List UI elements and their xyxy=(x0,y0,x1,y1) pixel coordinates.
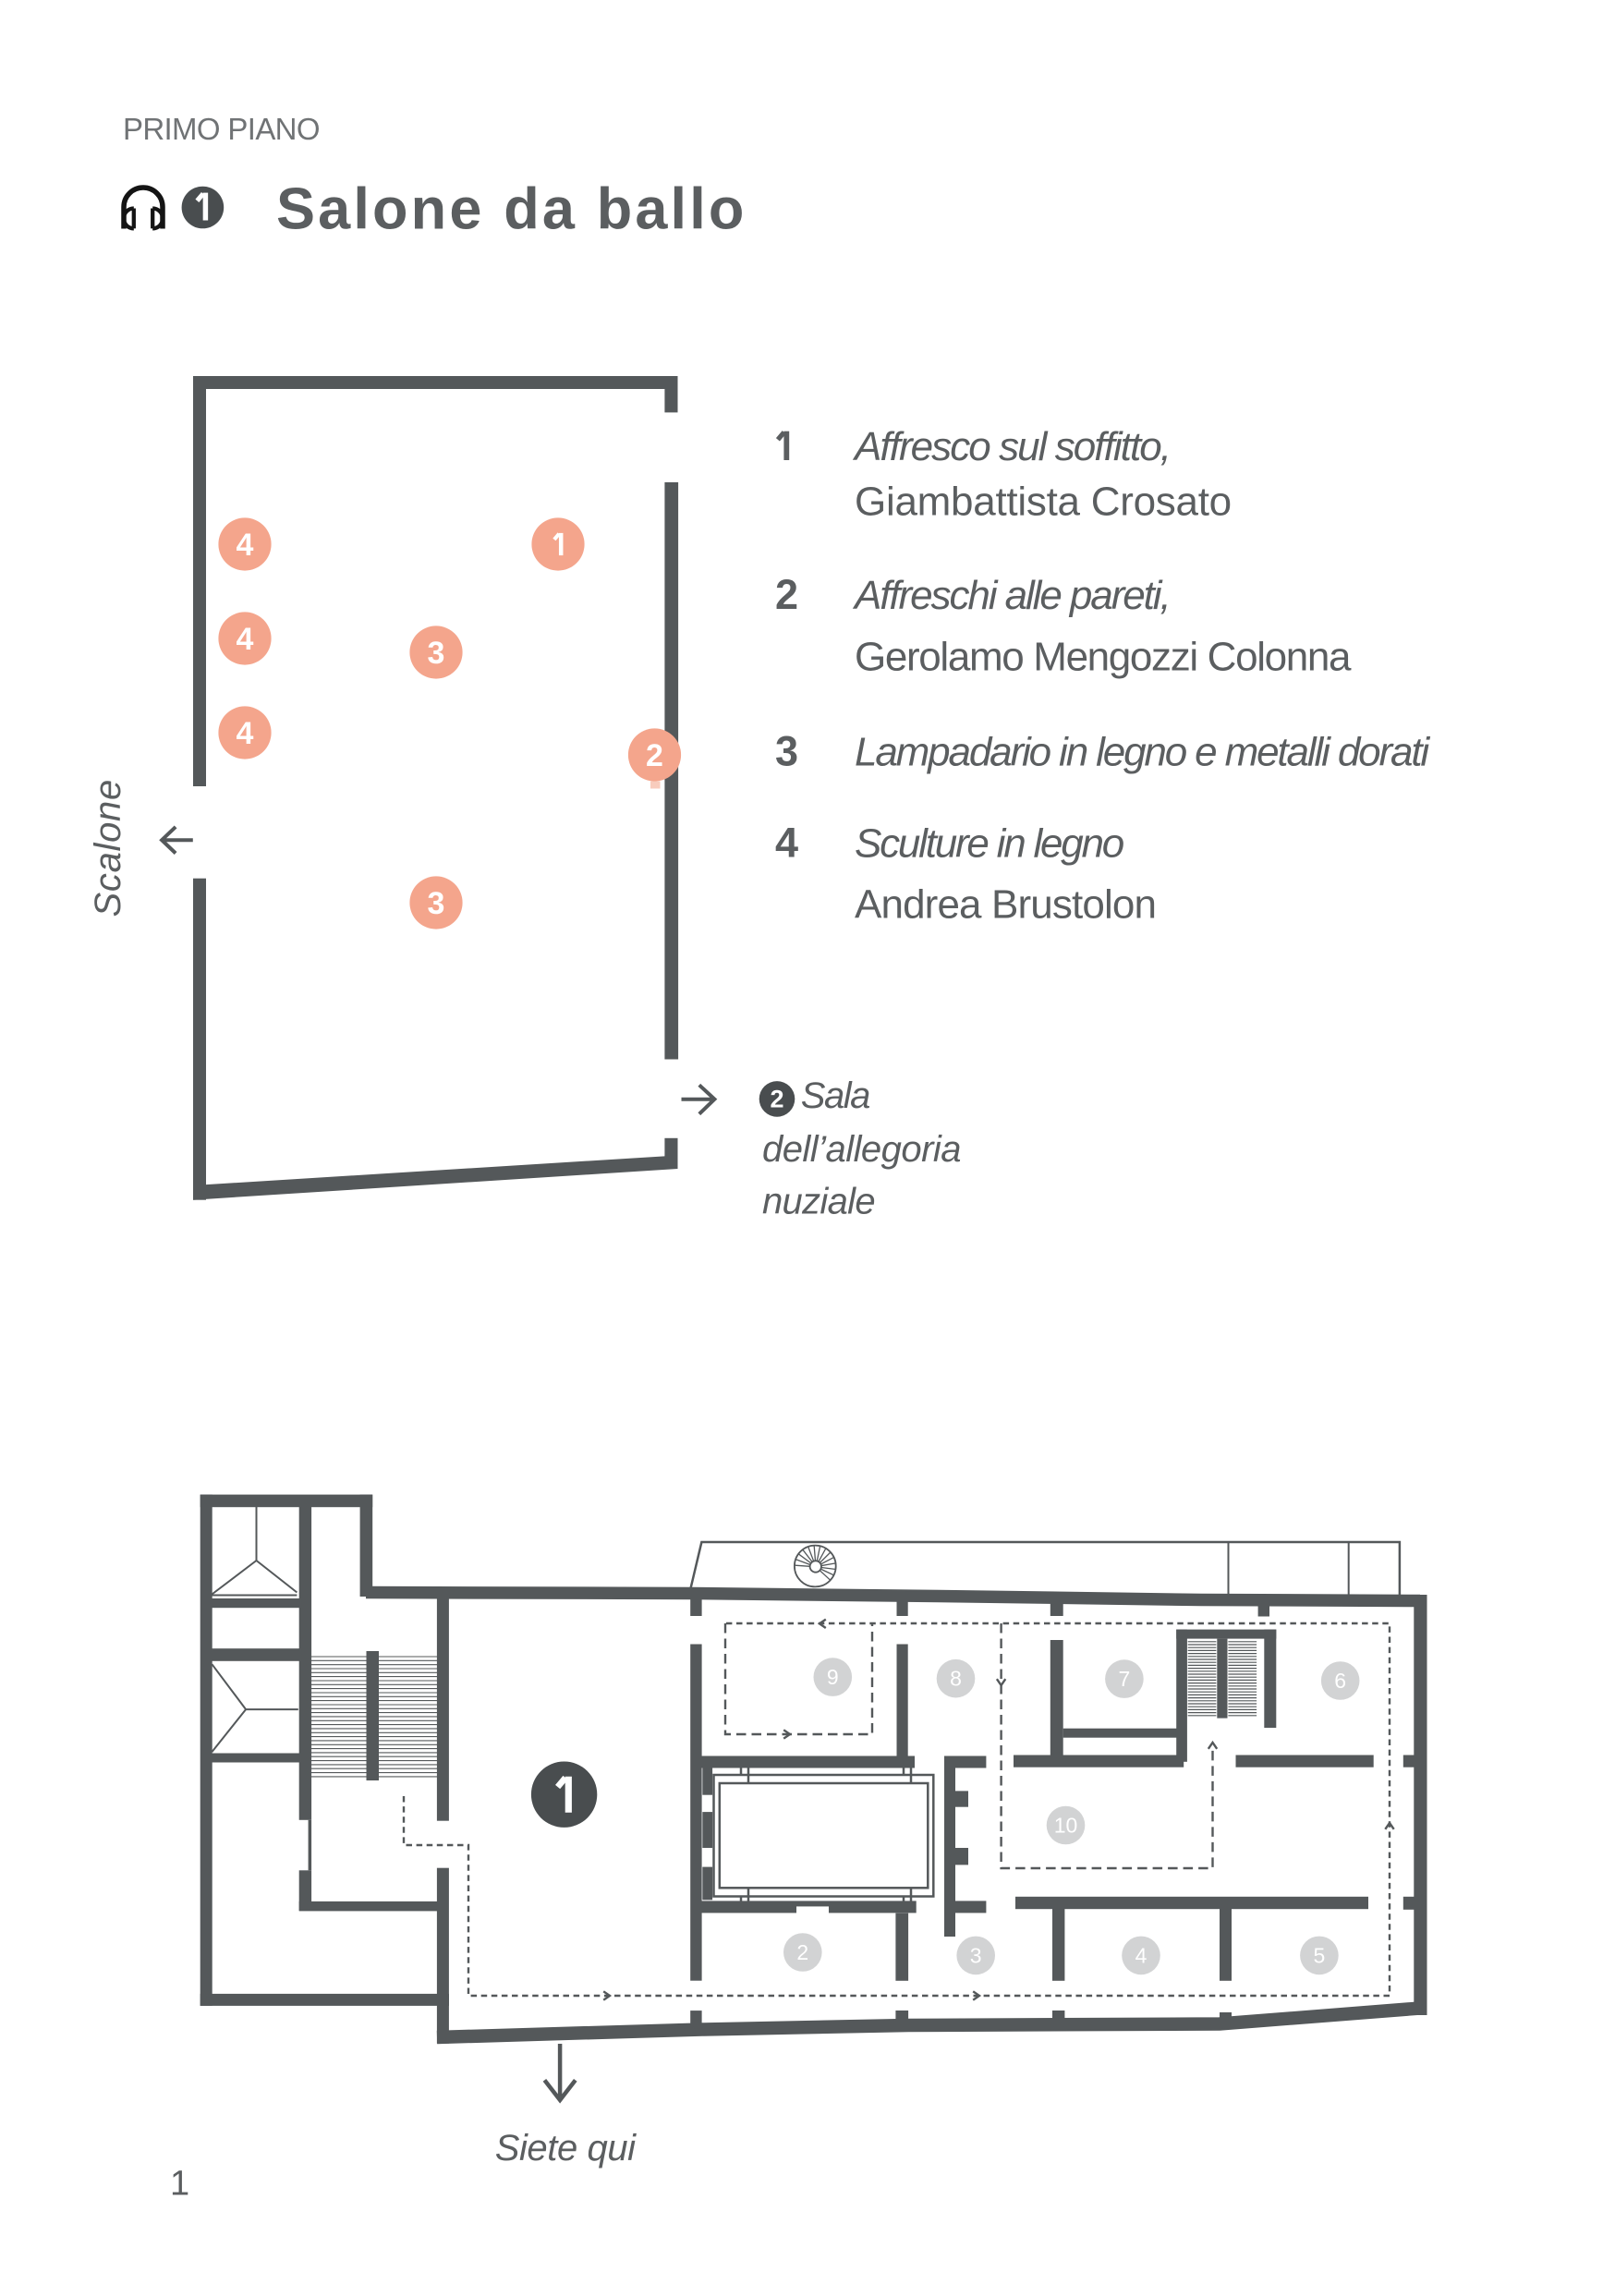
svg-text:3: 3 xyxy=(970,1943,982,1967)
svg-text:7: 7 xyxy=(1119,1667,1131,1691)
svg-text:nuziale: nuziale xyxy=(762,1182,875,1222)
svg-text:Giambattista Crosato: Giambattista Crosato xyxy=(855,480,1232,525)
svg-text:4: 4 xyxy=(237,528,254,563)
svg-text:Sculture in legno: Sculture in legno xyxy=(855,821,1124,867)
svg-text:Affresco sul soffitto,: Affresco sul soffitto, xyxy=(852,424,1170,469)
svg-text:4: 4 xyxy=(775,820,798,867)
svg-text:1: 1 xyxy=(170,2165,189,2204)
svg-text:10: 10 xyxy=(1054,1814,1078,1838)
svg-text:Sala: Sala xyxy=(801,1075,869,1116)
svg-text:Lampadario in legno e metalli: Lampadario in legno e metalli dorati xyxy=(855,730,1430,775)
svg-text:8: 8 xyxy=(950,1667,962,1691)
svg-text:9: 9 xyxy=(827,1665,839,1689)
svg-text:2: 2 xyxy=(775,571,798,618)
svg-text:5: 5 xyxy=(1314,1943,1326,1967)
svg-text:4: 4 xyxy=(237,622,254,657)
svg-text:4: 4 xyxy=(1135,1943,1147,1967)
svg-text:Siete qui: Siete qui xyxy=(495,2128,637,2168)
svg-text:3: 3 xyxy=(428,636,445,671)
svg-text:dell’allegoria: dell’allegoria xyxy=(762,1129,961,1170)
svg-text:Andrea Brustolon: Andrea Brustolon xyxy=(855,882,1156,928)
svg-text:Affreschi alle pareti,: Affreschi alle pareti, xyxy=(852,573,1170,618)
svg-text:Gerolamo Mengozzi Colonna: Gerolamo Mengozzi Colonna xyxy=(855,635,1352,680)
svg-text:6: 6 xyxy=(1334,1669,1346,1693)
svg-text:2: 2 xyxy=(770,1086,783,1113)
svg-text:Scalone: Scalone xyxy=(88,779,128,917)
svg-text:PRIMO PIANO: PRIMO PIANO xyxy=(123,112,320,146)
svg-text:Salone da ballo: Salone da ballo xyxy=(276,176,747,241)
svg-text:4: 4 xyxy=(237,716,254,751)
svg-text:2: 2 xyxy=(796,1940,808,1964)
svg-text:3: 3 xyxy=(775,728,798,775)
svg-text:3: 3 xyxy=(428,886,445,921)
svg-text:2: 2 xyxy=(646,738,663,773)
